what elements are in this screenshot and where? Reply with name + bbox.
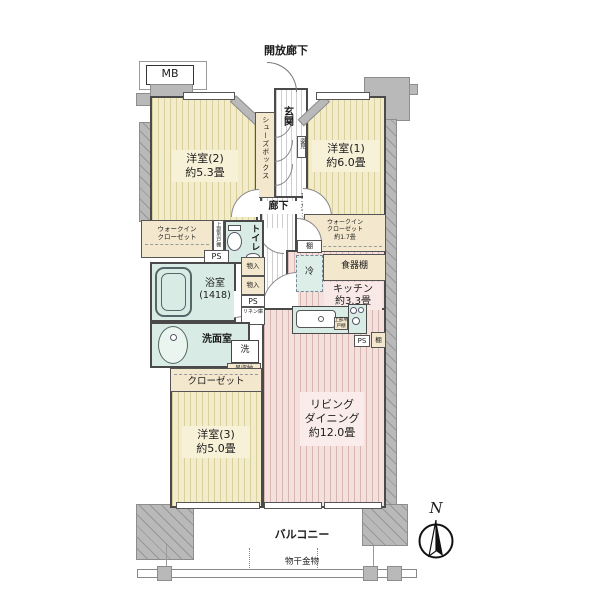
closet-shelf-line bbox=[174, 374, 258, 375]
compass-icon bbox=[416, 518, 456, 560]
bathtub-icon bbox=[155, 267, 192, 317]
concrete-tab-top-right bbox=[409, 84, 418, 95]
linen-label: リネン庫 bbox=[242, 309, 264, 316]
rail-block-1 bbox=[157, 566, 172, 581]
bedroom1-name: 洋室(1) bbox=[327, 142, 365, 156]
bedroom3-size: 約5.0畳 bbox=[196, 442, 236, 456]
bedroom3-name: 洋室(3) bbox=[197, 428, 235, 442]
bedroom1-label: 洋室(1) 約6.0畳 bbox=[312, 140, 380, 172]
floor-plan: 開放廊下 MB シューズボックス 玄関 姿見 エコカラット 洋室(2) 約5.3… bbox=[0, 0, 600, 600]
kitchen-faucet-icon bbox=[318, 316, 324, 322]
washbasin-icon bbox=[158, 326, 188, 364]
burner-1 bbox=[350, 307, 357, 314]
bedroom2-size: 約5.3畳 bbox=[185, 166, 225, 180]
dish-shelf-label: 食器棚 bbox=[323, 261, 386, 272]
balcony-label: バルコニー bbox=[255, 528, 349, 542]
drying-hardware-label: 物干金物 bbox=[262, 557, 342, 568]
kitchen-upper-label: 上部吊戸棚 bbox=[334, 318, 348, 330]
bedroom3-label: 洋室(3) 約5.0畳 bbox=[182, 426, 250, 458]
bathroom-label: 浴室 (1418) bbox=[194, 276, 236, 304]
living-line1: リビング bbox=[310, 398, 354, 412]
hanger-pipe bbox=[145, 244, 209, 245]
concrete-tab-top-left bbox=[136, 93, 151, 106]
exterior-wall-left bbox=[139, 122, 151, 222]
fridge-label: 冷 bbox=[296, 267, 323, 278]
bathtub-inner bbox=[161, 273, 186, 311]
entrance-label: 玄関 bbox=[280, 106, 293, 126]
bedroom1-window bbox=[316, 92, 370, 100]
shelf-label-2: 棚 bbox=[371, 336, 386, 344]
corridor-label: 廊下 bbox=[260, 201, 297, 214]
shoes-box-label: シューズボックス bbox=[261, 116, 270, 180]
concrete-block-bottom-left bbox=[136, 504, 194, 560]
bathroom-name: 浴室 bbox=[205, 278, 225, 291]
bathroom-size: (1418) bbox=[199, 290, 231, 302]
storage-label-1: 物入 bbox=[241, 262, 265, 270]
bedroom1-size: 約6.0畳 bbox=[326, 156, 366, 170]
wic-right-line3: 約1.7畳 bbox=[334, 234, 356, 242]
bedroom2-window bbox=[183, 92, 235, 100]
burner-3 bbox=[352, 317, 360, 325]
storage-label-2: 物入 bbox=[241, 281, 265, 289]
toilet-icon bbox=[227, 232, 242, 251]
ps-label-3: PS bbox=[354, 337, 370, 346]
wic-left-line1: ウォークイン bbox=[158, 225, 197, 233]
balcony-window-2 bbox=[264, 502, 322, 509]
mb-label: MB bbox=[146, 67, 194, 81]
washbasin-drain bbox=[170, 334, 177, 341]
burner-2 bbox=[358, 307, 364, 313]
bedroom2-name: 洋室(2) bbox=[186, 152, 224, 166]
balcony-window-3 bbox=[324, 502, 382, 509]
balcony-window-1 bbox=[176, 502, 260, 509]
mirror-label: 姿見 bbox=[298, 138, 305, 149]
rail-block-2 bbox=[363, 566, 378, 581]
bedroom2-label: 洋室(2) 約5.3畳 bbox=[172, 150, 238, 182]
wic-right-line2: クローゼット bbox=[327, 226, 363, 234]
ps-label-2: PS bbox=[241, 297, 265, 306]
concrete-block-bottom-right bbox=[362, 504, 408, 546]
upper-cabinet-label: 上部吊戸棚 bbox=[215, 222, 221, 247]
rail-block-3 bbox=[387, 566, 402, 581]
north-label: N bbox=[425, 499, 447, 518]
living-line2: ダイニング bbox=[305, 412, 360, 426]
kitchen-sink-icon bbox=[296, 310, 336, 328]
kitchen-name: キッチン bbox=[333, 284, 373, 297]
walkin-closet-left-label: ウォークイン クローゼット bbox=[143, 224, 211, 242]
toilet-label: トイレ bbox=[248, 224, 259, 251]
shelf-label-1: 棚 bbox=[297, 242, 322, 251]
laundry-label: 洗 bbox=[231, 345, 259, 356]
toilet-tank-icon bbox=[228, 225, 241, 231]
living-label: リビング ダイニング 約12.0畳 bbox=[300, 392, 364, 446]
ps-label-1: PS bbox=[204, 252, 229, 262]
open-corridor-label: 開放廊下 bbox=[230, 44, 342, 58]
living-line3: 約12.0畳 bbox=[309, 426, 356, 440]
entrance-door-arc bbox=[267, 62, 297, 92]
wic-left-line2: クローゼット bbox=[158, 233, 197, 241]
closet-room3-label: クローゼット bbox=[170, 376, 262, 388]
